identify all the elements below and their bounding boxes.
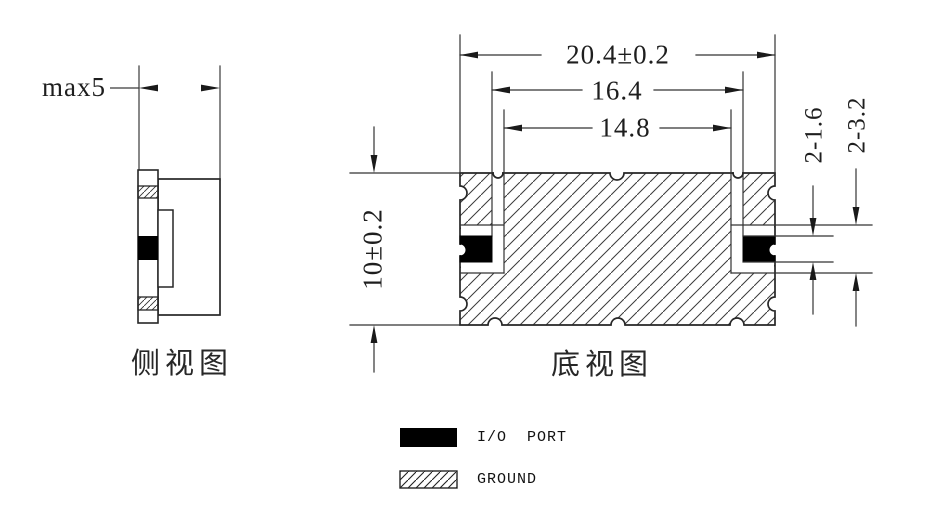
dim-arrow [492, 87, 510, 94]
sideview-ground-pad-bottom [138, 297, 158, 310]
io-port-swatch [400, 428, 457, 447]
dim-arrow [460, 52, 478, 59]
dim-label-overall-width: 20.4±0.2 [562, 42, 674, 69]
sideview-ground-pad-top [138, 186, 158, 198]
ground-hatch-area [460, 173, 775, 325]
dim-label-io-pad-height: 2-1.6 [802, 102, 827, 167]
dim-arrow [810, 218, 817, 236]
side-view-drawing [105, 66, 220, 323]
sideview-protrusion [158, 210, 173, 287]
side-view-title: 侧视图 [131, 350, 233, 379]
dim-arrow [371, 325, 378, 343]
dim-arrow [757, 52, 775, 59]
max5-arrow-right [201, 85, 220, 92]
ground-swatch [400, 471, 457, 488]
dim-label-max5: max5 [38, 74, 110, 101]
dim-arrow [810, 262, 817, 280]
dim-arrow [725, 87, 743, 94]
dim-label-overall-height: 10±0.2 [360, 204, 387, 294]
legend-label-io-port: I/O PORT [477, 430, 567, 445]
dim-label-io-pad-span: 16.4 [587, 78, 646, 105]
drawing-line-art [0, 0, 946, 524]
engineering-drawing-page: max5 20.4±0.2 16.4 14.8 10±0.2 2-1.6 2-3… [0, 0, 946, 524]
legend-label-ground: GROUND [477, 472, 537, 487]
dim-arrow [853, 207, 860, 225]
dim-arrow [713, 125, 731, 132]
dim-label-clearance-span: 14.8 [595, 115, 654, 142]
bottom-view-title: 底视图 [551, 351, 653, 380]
dim-arrow [853, 273, 860, 291]
max5-arrow-left [139, 85, 158, 92]
dim-arrow [371, 155, 378, 173]
dim-label-clearance-height: 2-3.2 [845, 92, 870, 157]
sideview-io-pad [138, 236, 158, 260]
dim-arrow [504, 125, 522, 132]
legend-swatches [400, 428, 457, 488]
